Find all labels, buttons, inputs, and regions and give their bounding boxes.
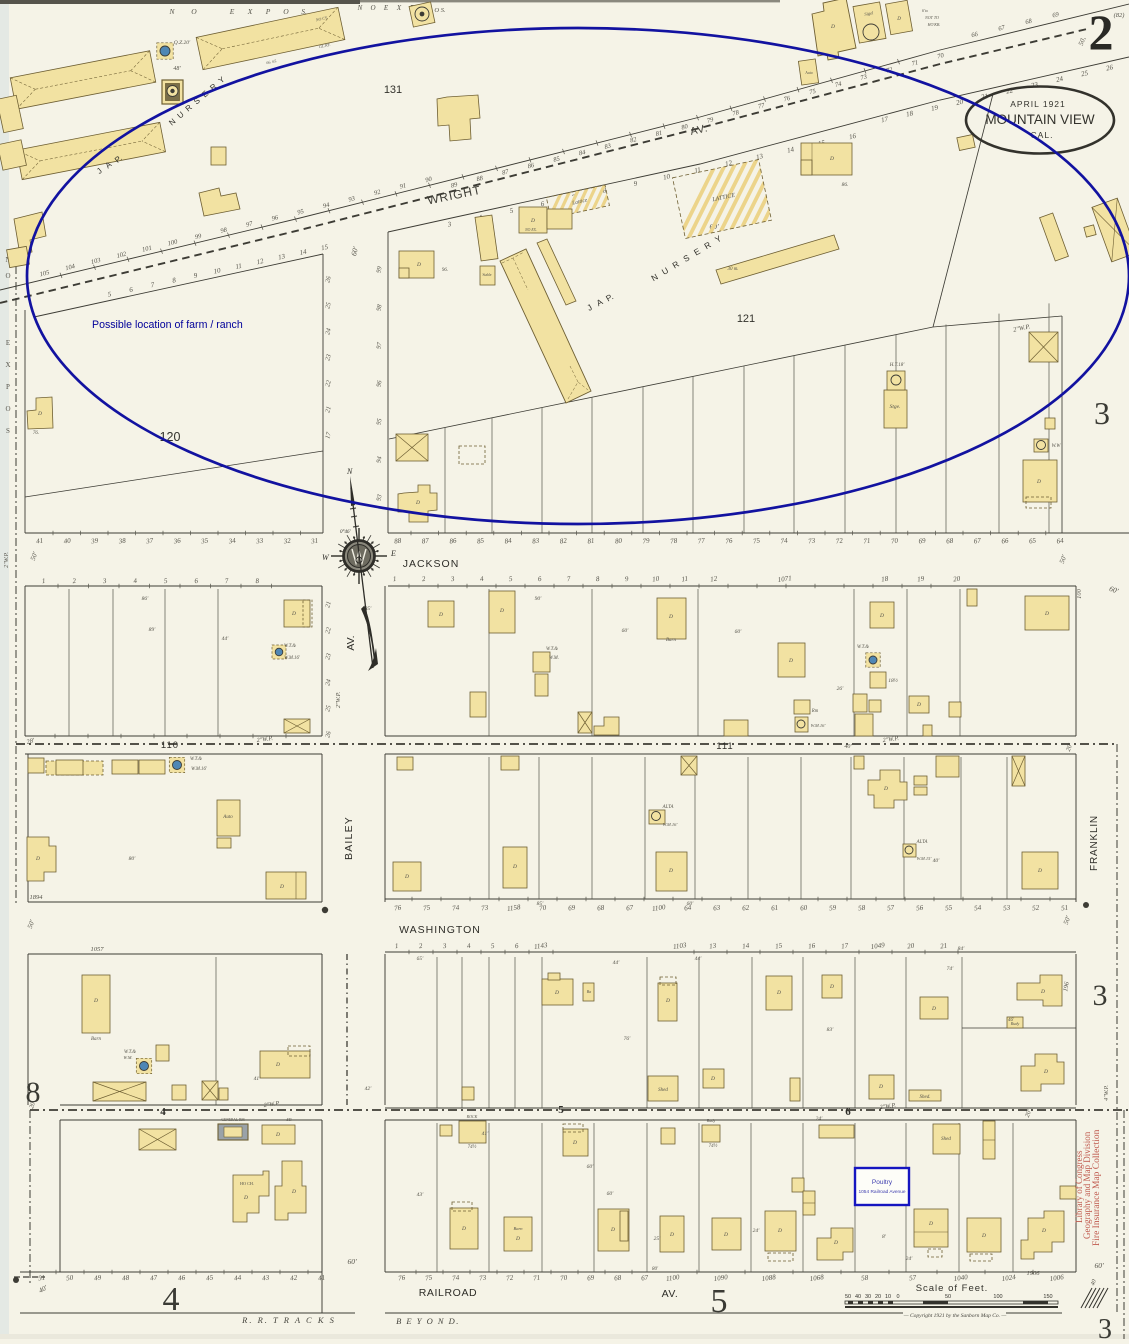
svg-text:D: D: [610, 1227, 615, 1233]
svg-text:Barn: Barn: [514, 1226, 524, 1231]
svg-text:Barn: Barn: [91, 1037, 102, 1042]
svg-text:60': 60': [607, 1191, 615, 1197]
svg-text:37: 37: [145, 537, 155, 546]
svg-text:W.M.16': W.M.16': [811, 723, 827, 728]
svg-text:D: D: [530, 218, 535, 224]
svg-text:AV.: AV.: [345, 635, 357, 650]
svg-text:D: D: [883, 786, 888, 792]
svg-text:D: D: [710, 1076, 715, 1082]
svg-text:D: D: [275, 1132, 280, 1138]
svg-text:D: D: [723, 1232, 728, 1238]
svg-text:5: 5: [711, 1283, 728, 1320]
svg-text:Possible location of farm / ra: Possible location of farm / ranch: [92, 319, 243, 331]
svg-text:86.: 86.: [842, 182, 849, 188]
svg-text:71: 71: [863, 537, 871, 546]
svg-text:HO CH.: HO CH.: [240, 1181, 254, 1186]
svg-text:96.: 96.: [442, 268, 448, 273]
svg-text:HO'KB.: HO'KB.: [927, 22, 941, 27]
svg-text:76': 76': [624, 1036, 632, 1042]
svg-text:0°46′: 0°46′: [340, 530, 351, 535]
svg-text:111: 111: [716, 741, 733, 752]
svg-text:1057: 1057: [91, 946, 105, 953]
svg-text:RAILROAD: RAILROAD: [419, 1287, 477, 1299]
svg-text:44': 44': [613, 959, 621, 966]
svg-text:W.M.15': W.M.15': [917, 856, 933, 861]
svg-text:O S.: O S.: [434, 7, 446, 14]
svg-text:Library of Congress: Library of Congress: [1074, 1150, 1084, 1223]
svg-text:100: 100: [1076, 588, 1083, 599]
svg-text:86': 86': [142, 596, 150, 602]
svg-text:D: D: [279, 884, 284, 890]
svg-text:26': 26': [837, 686, 845, 692]
svg-text:4: 4: [163, 1281, 180, 1318]
svg-text:110: 110: [161, 740, 179, 751]
svg-text:D: D: [829, 156, 834, 162]
svg-text:10: 10: [885, 1294, 891, 1300]
svg-text:O: O: [5, 272, 10, 280]
svg-text:50: 50: [945, 1294, 951, 1300]
svg-text:6'to: 6'to: [922, 8, 928, 13]
svg-text:D: D: [1037, 868, 1042, 874]
svg-text:P: P: [6, 383, 10, 391]
svg-text:D: D: [243, 1195, 248, 1201]
svg-text:3: 3: [1094, 395, 1110, 431]
svg-text:W.M.: W.M.: [123, 1055, 132, 1060]
svg-text:ROCK: ROCK: [466, 1114, 478, 1119]
svg-text:B E Y O N D.: B E Y O N D.: [396, 1316, 460, 1326]
svg-text:36: 36: [172, 537, 182, 546]
svg-text:24': 24': [753, 1227, 761, 1234]
svg-text:20: 20: [875, 1294, 881, 1300]
svg-text:4″W.P.: 4″W.P.: [1103, 1085, 1110, 1101]
svg-text:150: 150: [1043, 1294, 1052, 1300]
svg-text:W.M.16': W.M.16': [663, 822, 679, 827]
svg-text:D: D: [1036, 479, 1041, 485]
svg-text:D: D: [668, 868, 673, 874]
svg-text:41: 41: [36, 537, 44, 546]
svg-text:Stge.: Stge.: [890, 404, 901, 410]
svg-text:— Copyright 1921 by the Sanbor: — Copyright 1921 by the Sanborn Map Co. …: [903, 1313, 1007, 1319]
svg-text:Rudy: Rudy: [706, 1118, 716, 1123]
svg-text:O: O: [283, 7, 289, 16]
svg-text:1894: 1894: [30, 894, 44, 901]
svg-text:E: E: [229, 7, 235, 16]
svg-text:Stable: Stable: [483, 273, 492, 277]
svg-text:Shed: Shed: [658, 1088, 668, 1093]
svg-text:D: D: [1041, 1228, 1046, 1234]
svg-text:O: O: [370, 4, 375, 12]
svg-text:31: 31: [310, 537, 319, 546]
svg-text:MOUNTAIN VIEW: MOUNTAIN VIEW: [985, 112, 1095, 127]
svg-text:8: 8: [26, 1076, 41, 1109]
svg-text:W.T.&: W.T.&: [284, 644, 296, 649]
svg-text:11: 11: [681, 575, 689, 584]
svg-text:D: D: [35, 856, 40, 862]
svg-text:46': 46': [1008, 1018, 1015, 1023]
svg-text:D: D: [788, 658, 793, 664]
svg-text:76.: 76.: [33, 431, 39, 436]
svg-text:84': 84': [958, 945, 966, 952]
svg-text:D: D: [916, 702, 921, 708]
svg-text:D: D: [554, 990, 559, 996]
svg-text:E: E: [6, 339, 10, 347]
svg-text:D: D: [1044, 611, 1049, 617]
svg-text:25': 25': [654, 1236, 662, 1242]
svg-text:E: E: [383, 4, 389, 12]
svg-text:CAL.: CAL.: [1031, 130, 1054, 140]
svg-text:D: D: [515, 1236, 520, 1242]
svg-text:Auto: Auto: [805, 71, 813, 75]
svg-text:D: D: [665, 998, 670, 1004]
svg-text:W.T.&: W.T.&: [857, 645, 869, 650]
svg-text:100: 100: [993, 1294, 1002, 1300]
svg-text:131: 131: [384, 84, 402, 96]
svg-text:60': 60': [735, 629, 743, 635]
svg-text:51: 51: [1061, 904, 1069, 913]
svg-text:34: 34: [227, 537, 237, 546]
svg-text:89': 89': [149, 627, 157, 633]
svg-text:D: D: [1040, 989, 1045, 995]
svg-text:D: D: [291, 1189, 296, 1195]
svg-text:N: N: [168, 7, 175, 16]
svg-text:N: N: [346, 467, 353, 476]
svg-text:D: D: [37, 411, 42, 417]
svg-text:JACKSON: JACKSON: [403, 558, 460, 570]
svg-text:D: D: [931, 1006, 936, 1012]
svg-text:65': 65': [417, 956, 425, 962]
svg-text:D: D: [499, 608, 504, 614]
svg-text:60': 60': [1094, 1261, 1104, 1270]
svg-text:N: N: [357, 4, 363, 12]
svg-text:21: 21: [940, 942, 948, 951]
svg-text:44': 44': [222, 635, 230, 642]
svg-text:Q.Z.20': Q.Z.20': [174, 40, 191, 46]
svg-text:D: D: [878, 1084, 883, 1090]
svg-text:61: 61: [771, 904, 779, 913]
svg-text:6: 6: [845, 1106, 851, 1118]
svg-text:121: 121: [737, 313, 755, 325]
svg-text:18½: 18½: [888, 677, 898, 684]
svg-text:Rm: Rm: [811, 709, 819, 714]
svg-text:0: 0: [896, 1294, 899, 1300]
svg-text:2: 2: [1089, 4, 1114, 60]
svg-text:24': 24': [906, 1255, 914, 1262]
svg-text:H.T.18': H.T.18': [889, 363, 906, 368]
svg-text:FRANKLIN: FRANKLIN: [1089, 815, 1100, 871]
svg-text:1906: 1906: [1027, 1270, 1041, 1277]
svg-text:D: D: [93, 998, 98, 1004]
svg-text:Ba: Ba: [587, 989, 591, 994]
svg-text:X: X: [247, 7, 253, 16]
svg-text:51: 51: [38, 1274, 46, 1283]
svg-text:D: D: [512, 864, 517, 870]
svg-text:D: D: [928, 1221, 933, 1227]
svg-text:39: 39: [90, 537, 100, 546]
svg-text:5: 5: [558, 1104, 564, 1116]
svg-text:50: 50: [845, 1294, 851, 1300]
svg-text:ALTA: ALTA: [916, 840, 928, 845]
svg-text:1054 Railroad Avenue: 1054 Railroad Avenue: [858, 1189, 905, 1195]
svg-text:X: X: [396, 4, 402, 12]
svg-text:60': 60': [622, 628, 630, 634]
svg-text:W.M.16': W.M.16': [284, 656, 301, 661]
svg-text:74½: 74½: [468, 1145, 477, 1150]
svg-text:X: X: [5, 361, 10, 369]
svg-text:W.M.16': W.M.16': [191, 767, 208, 772]
svg-text:Barn: Barn: [666, 638, 677, 643]
svg-text:90': 90': [535, 596, 543, 602]
svg-text:42': 42': [365, 1085, 373, 1092]
svg-text:Poultry: Poultry: [872, 1179, 893, 1186]
svg-text:4: 4: [160, 1106, 166, 1118]
svg-text:74': 74': [947, 965, 955, 972]
svg-text:80': 80': [652, 1267, 659, 1272]
svg-text:33: 33: [255, 537, 265, 546]
svg-text:40': 40': [933, 857, 941, 864]
svg-text:D: D: [830, 24, 835, 30]
svg-text:81: 81: [587, 537, 595, 546]
svg-text:35: 35: [200, 537, 210, 546]
svg-text:71: 71: [533, 1274, 541, 1283]
svg-text:D: D: [572, 1140, 577, 1146]
svg-text:WASHINGTON: WASHINGTON: [399, 924, 481, 936]
svg-text:P: P: [265, 7, 271, 16]
svg-text:40: 40: [855, 1294, 861, 1300]
svg-text:3: 3: [1098, 1314, 1112, 1339]
svg-text:2″W.P.: 2″W.P.: [4, 552, 10, 568]
svg-text:3: 3: [1093, 979, 1108, 1012]
svg-text:Shed.: Shed.: [920, 1095, 931, 1100]
svg-text:D: D: [777, 1228, 782, 1234]
svg-text:Scale of Feet.: Scale of Feet.: [916, 1283, 989, 1294]
svg-text:41': 41': [254, 1075, 262, 1082]
svg-text:D: D: [669, 1232, 674, 1238]
svg-text:W.M.: W.M.: [549, 656, 559, 661]
svg-text:ALTA: ALTA: [662, 805, 674, 810]
svg-text:32: 32: [282, 537, 292, 546]
svg-text:D: D: [879, 613, 884, 619]
svg-text:24': 24': [816, 1115, 824, 1122]
svg-text:38: 38: [117, 537, 127, 546]
svg-text:Shed: Shed: [941, 1137, 951, 1142]
svg-text:30 m.: 30 m.: [727, 267, 738, 272]
svg-text:O: O: [5, 405, 10, 413]
svg-text:D: D: [291, 611, 296, 617]
svg-text:80': 80': [129, 856, 137, 862]
svg-text:D: D: [416, 262, 421, 268]
svg-text:D: D: [896, 17, 901, 22]
svg-text:74½: 74½: [709, 1144, 718, 1149]
svg-text:41': 41': [482, 1130, 490, 1137]
svg-text:5R: 5R: [287, 1117, 292, 1122]
svg-text:Fire Insurance Map Collection: Fire Insurance Map Collection: [1092, 1129, 1102, 1246]
svg-text:D: D: [833, 1240, 838, 1246]
svg-text:R. R. T R A C K S: R. R. T R A C K S: [241, 1315, 336, 1325]
svg-text:GENERAL RM: GENERAL RM: [221, 1118, 245, 1122]
svg-text:D: D: [981, 1233, 986, 1239]
svg-text:E: E: [390, 549, 396, 558]
svg-text:APRIL 1921: APRIL 1921: [1010, 99, 1066, 109]
svg-text:NOT TO: NOT TO: [924, 15, 939, 20]
svg-text:NO EX.: NO EX.: [524, 228, 537, 232]
svg-text:D: D: [776, 990, 781, 996]
svg-text:41: 41: [318, 1274, 326, 1283]
svg-text:W.T.&: W.T.&: [546, 647, 558, 652]
svg-text:Auto: Auto: [222, 815, 233, 820]
svg-text:BAILEY: BAILEY: [343, 816, 355, 860]
svg-text:2″W.P.: 2″W.P.: [335, 692, 342, 708]
svg-text:60': 60': [347, 1257, 357, 1266]
svg-text:44': 44': [695, 955, 703, 962]
svg-text:D: D: [1043, 1069, 1048, 1075]
svg-text:S: S: [6, 427, 10, 435]
svg-text:60': 60': [687, 901, 695, 907]
svg-text:60': 60': [587, 1164, 595, 1170]
svg-text:W.W: W.W: [1052, 444, 1062, 449]
svg-text:40': 40': [844, 743, 852, 750]
svg-text:D: D: [275, 1062, 280, 1068]
svg-text:48': 48': [173, 65, 181, 72]
svg-text:D: D: [668, 614, 673, 620]
svg-text:85': 85': [537, 901, 545, 907]
svg-text:D: D: [404, 874, 409, 880]
svg-text:O: O: [191, 7, 197, 16]
svg-text:(82): (82): [1114, 12, 1125, 19]
svg-text:30: 30: [865, 1294, 871, 1300]
svg-text:D: D: [461, 1226, 466, 1232]
svg-text:43': 43': [417, 1191, 425, 1198]
svg-text:AV.: AV.: [662, 1288, 679, 1300]
svg-text:W.T.&: W.T.&: [190, 757, 202, 762]
svg-text:D: D: [415, 500, 420, 506]
svg-text:83': 83': [827, 1027, 835, 1033]
svg-text:D: D: [829, 984, 834, 990]
svg-text:D: D: [438, 612, 443, 618]
